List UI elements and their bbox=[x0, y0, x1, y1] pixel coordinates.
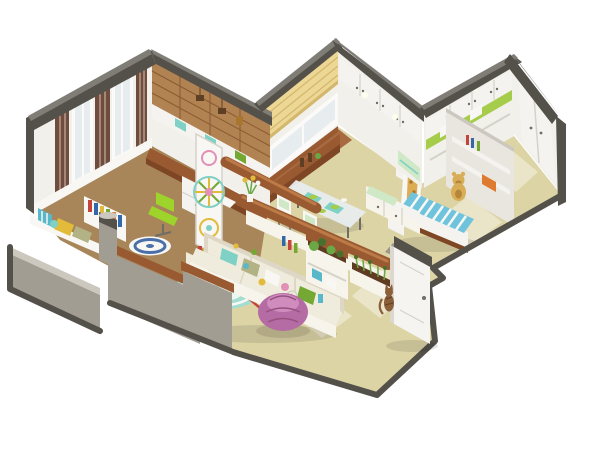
toy bbox=[251, 249, 257, 255]
ceiling-light bbox=[392, 114, 398, 120]
door-shadow bbox=[386, 340, 438, 352]
toy-bottle bbox=[318, 294, 323, 303]
console-book bbox=[294, 243, 298, 253]
book bbox=[88, 200, 92, 212]
shelf-book bbox=[471, 138, 474, 148]
toy bbox=[259, 279, 266, 286]
apartment-screenshot bbox=[0, 0, 600, 450]
door-handle bbox=[422, 296, 426, 300]
gray-pillar bbox=[99, 212, 117, 268]
counter-plant bbox=[315, 153, 321, 159]
potted-plant bbox=[337, 251, 344, 258]
ceiling-light bbox=[362, 92, 368, 98]
toy bbox=[281, 283, 289, 291]
potted-plant bbox=[318, 238, 326, 246]
green-plate bbox=[309, 195, 318, 199]
potted-plant bbox=[309, 241, 319, 251]
green-plate bbox=[331, 205, 340, 209]
bottle bbox=[308, 153, 312, 162]
cushion-teal bbox=[50, 220, 58, 228]
console-book bbox=[282, 236, 286, 246]
round-blue-rug bbox=[129, 237, 171, 256]
book bbox=[94, 203, 98, 215]
bottle bbox=[300, 158, 304, 167]
console-book bbox=[288, 240, 292, 250]
shelf-book bbox=[477, 141, 480, 151]
plaid-curtain bbox=[136, 63, 147, 155]
bowl bbox=[341, 198, 347, 202]
wardrobe-handle bbox=[540, 132, 543, 135]
wardrobe-handle bbox=[530, 127, 533, 130]
book bbox=[118, 215, 122, 227]
purple-bean-bag bbox=[258, 293, 308, 331]
potted-plant bbox=[327, 246, 336, 255]
shelf-book bbox=[466, 135, 469, 145]
apartment-3d-render bbox=[0, 0, 600, 450]
toy bbox=[233, 243, 238, 248]
toy bbox=[243, 263, 249, 269]
